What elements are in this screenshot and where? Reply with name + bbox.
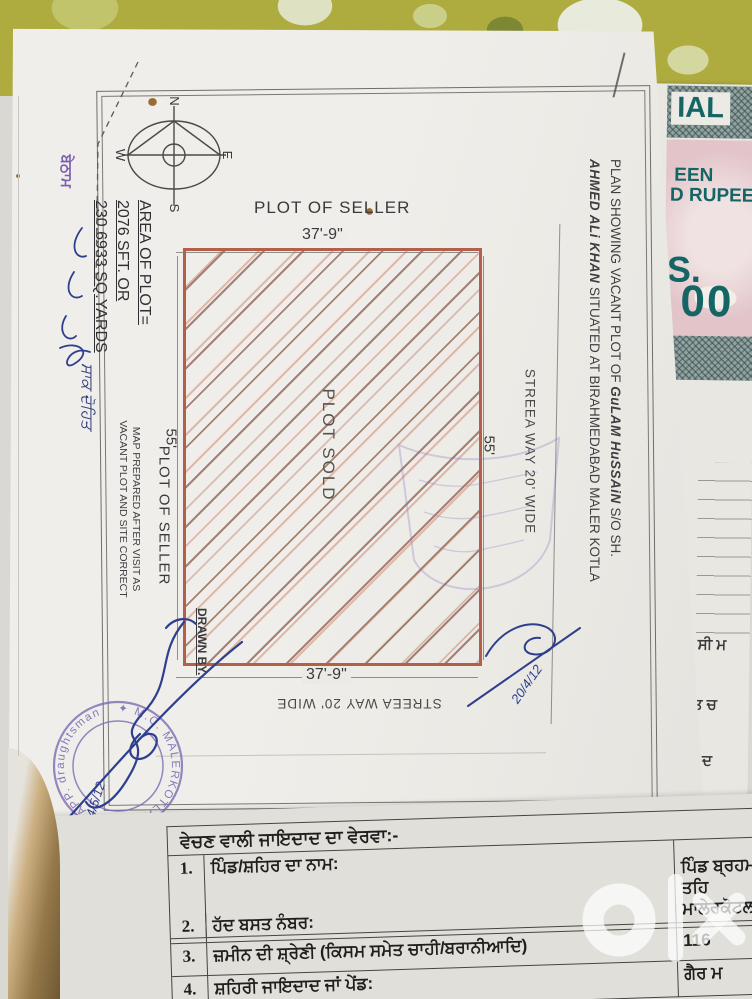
photo-of-plot-map-document: IAL EEN D RUPEE S. 00 ਸੀ ਮ ਤ ਚ ਦ xyxy=(0,0,752,999)
compass-n: N xyxy=(167,96,182,105)
compass-s: S xyxy=(167,204,182,213)
bottom-dimension-value: 37'-9" xyxy=(302,666,351,684)
site-plan-sheet: N E S W PLOT OF SELLER 37'-9" PLOT SOLD … xyxy=(6,24,706,836)
title-printed-2: S/O SH. xyxy=(608,504,623,557)
paper-edge-line xyxy=(18,96,19,756)
stamp-denomination-fragment-1: EEN xyxy=(674,166,713,186)
stamp-pink-panel: EEN D RUPEE S. 00 xyxy=(664,140,752,337)
underpage-text-fragment-1: ਸੀ ਮ xyxy=(698,636,727,653)
underpage-text-fragment-3: ਦ xyxy=(702,752,712,769)
street-label-bottom: STREEA WAY 20' WIDE xyxy=(264,696,454,711)
title-handwritten-name-1: GuLAM HuSSAiN xyxy=(608,386,623,504)
title-printed-3: SITUATED AT BIRAHMEDABAD MALER KOTLA xyxy=(587,283,602,582)
stamp-value-fragment: 00 xyxy=(680,280,734,325)
row-number: 3. xyxy=(171,943,208,977)
margin-handwriting-scribble xyxy=(40,220,110,370)
margin-purple-stamp-text: ਬੇਠਾਮ xyxy=(58,155,75,219)
compass-e: E xyxy=(220,151,234,160)
signature-2: 20/4/12 xyxy=(456,594,596,724)
signature-2-date: 20/4/12 xyxy=(507,661,545,707)
stamp-engraved-band-bottom xyxy=(663,336,752,381)
stamp-title-fragment: IAL xyxy=(671,92,730,126)
top-dimension-value: 37'-9" xyxy=(298,226,347,244)
row-number: 2. xyxy=(170,913,207,944)
top-plot-of-seller-label: PLOT OF SELLER xyxy=(254,198,410,218)
plan-title-line1: PLAN SHOWING VACANT PLOT OF GuLAM HuSSAi… xyxy=(604,159,625,729)
title-handwritten-name-2: AHMED ALi KHAN xyxy=(587,159,602,283)
plot-sold-label: PLOT SOLD xyxy=(318,385,338,505)
margin-punjabi-handwriting: ਸਾਕ ਦੋਹਿਤ xyxy=(77,363,95,523)
olx-watermark-logo xyxy=(572,862,752,990)
title-printed-1: PLAN SHOWING VACANT PLOT OF xyxy=(608,159,623,386)
stamp-denomination-fragment-2: D RUPEE xyxy=(670,186,752,206)
olx-bar-glyph xyxy=(668,874,683,962)
ruled-lines-under-page xyxy=(696,462,752,635)
row-number: 4. xyxy=(172,976,209,999)
